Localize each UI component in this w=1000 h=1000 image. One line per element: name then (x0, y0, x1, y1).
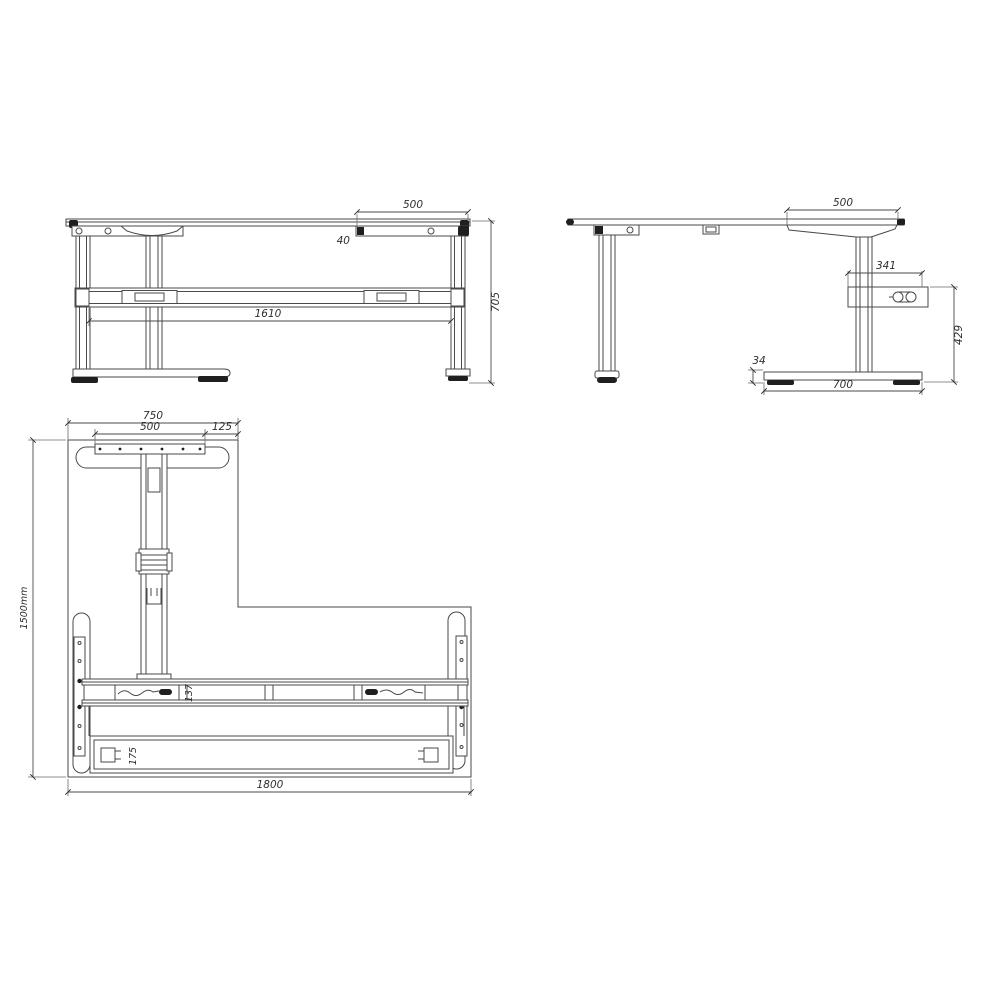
side-tabletop (566, 219, 905, 225)
dim-label-front-40: 40 (337, 235, 351, 247)
front-right-mount-plate (356, 226, 469, 236)
cable-connector (159, 689, 172, 695)
dim-label-plan-500: 500 (140, 421, 160, 433)
cable-connector (365, 689, 378, 695)
plan-view: 137 175 750 (19, 410, 471, 796)
foot-pad (198, 376, 228, 382)
screw-icon (428, 228, 434, 234)
plan-dim-1800: 1800 (68, 779, 471, 796)
motor-box-left (84, 685, 115, 700)
side-left-bracket (594, 225, 639, 235)
beam-divider (265, 685, 273, 700)
desk-technical-drawing: 500 40 1610 705 (0, 0, 1000, 1000)
screw-icon (105, 228, 111, 234)
beam-bracket-right (364, 291, 419, 304)
side-top-support-bracket (787, 225, 897, 237)
plan-top-mount-plate (95, 444, 205, 454)
beam-divider (354, 685, 362, 700)
front-right-foot (446, 369, 470, 381)
plan-bottom-rail: 175 (90, 736, 453, 773)
motor-box-right (425, 685, 458, 700)
screw-icon (627, 227, 633, 233)
dim-label-front-1610: 1610 (255, 308, 282, 320)
screw-icon (76, 228, 82, 234)
front-dim-1610: 1610 (89, 308, 451, 326)
side-dim-34: 34 (748, 355, 766, 383)
front-view: 500 40 1610 705 (66, 199, 502, 383)
foot-pad (597, 377, 617, 383)
cable-right (380, 690, 423, 695)
foot-pad (767, 380, 794, 385)
side-middle-bracket (703, 225, 719, 234)
dim-label-front-705: 705 (490, 292, 502, 312)
side-front-leg (595, 235, 619, 383)
beam-bracket-left (122, 291, 177, 304)
paddle-switch-icon (889, 292, 916, 302)
cable-left (118, 690, 159, 695)
dim-label-plan-1500mm: 1500mm (19, 587, 30, 630)
beam-endcap-left (76, 289, 89, 306)
dim-label-side-700: 700 (833, 379, 853, 391)
front-left-foot (71, 369, 230, 383)
desktop-outline (68, 440, 471, 777)
dim-label-plan-1800: 1800 (257, 779, 284, 791)
foot-pad (893, 380, 920, 385)
side-dim-429: 429 (924, 287, 965, 382)
drawing-canvas: 500 40 1610 705 (0, 0, 1000, 1000)
dim-label-side-429: 429 (953, 325, 965, 345)
side-rear-column (856, 237, 872, 373)
dim-label-plan-125: 125 (212, 421, 232, 433)
dim-label-side-341: 341 (876, 260, 896, 272)
plan-column (136, 454, 172, 683)
dim-label-plan-137: 137 (184, 684, 195, 702)
plan-dim-1500: 1500mm (19, 440, 66, 777)
dim-label-plan-175: 175 (128, 747, 139, 765)
side-view: 500 341 429 34 700 (566, 197, 965, 395)
column-connector-block (136, 549, 172, 574)
front-dim-705: 705 (469, 221, 502, 383)
beam-endcap-right (451, 289, 464, 306)
dim-label-front-500: 500 (403, 199, 423, 211)
foot-pad (448, 376, 468, 381)
dim-label-side-34: 34 (752, 355, 765, 367)
plan-beam: 137 (82, 679, 468, 706)
plan-dim-500-125: 500 125 (95, 421, 238, 444)
front-crossbeam (75, 288, 465, 307)
foot-pad (71, 377, 98, 383)
dim-label-side-500: 500 (833, 197, 853, 209)
